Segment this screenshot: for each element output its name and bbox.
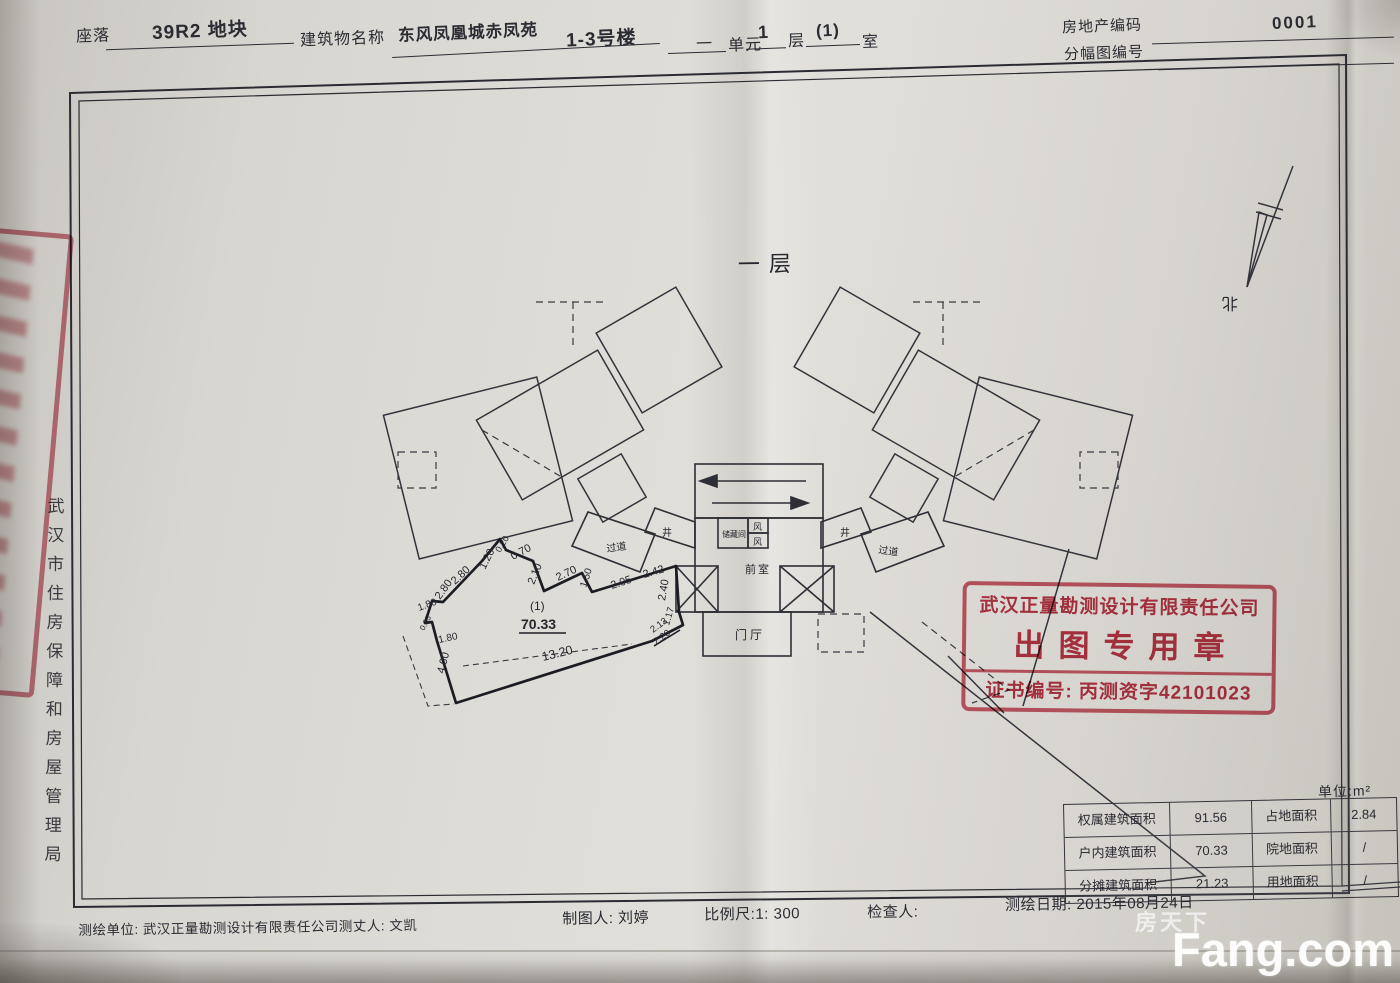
room-label-storage: 储藏间 (722, 529, 746, 539)
unit-number: (1) (530, 599, 545, 613)
company-stamp: 武汉正量勘测设计有限责任公司 出图专用章 证书编号: 丙测资字42101023 (961, 581, 1277, 715)
checker: 检查人: (867, 900, 918, 922)
wing-right (794, 287, 1132, 559)
dim-label: 2.05 (609, 574, 633, 592)
stamp-purpose: 出图专用章 (966, 619, 1273, 668)
stamp-cert-number: 证书编号: 丙测资字42101023 (965, 669, 1271, 706)
building-label: 建筑物名称 (300, 24, 386, 51)
table-cell: 占地面积 (1252, 799, 1332, 834)
dim-label: 1.50 (578, 567, 595, 589)
unit-area: 70.33 (521, 616, 556, 632)
room-label-front-room: 前室 (745, 562, 771, 576)
north-label: 北 (1222, 294, 1238, 312)
scale-note: 比例尺:1: 300 (704, 902, 800, 924)
wing-right-dashed (909, 302, 1118, 488)
unit-value: 1 (758, 22, 770, 43)
room-value: (1) (816, 21, 841, 42)
room-label-wind-2: 风 (753, 537, 762, 547)
table-cell: 70.33 (1171, 834, 1254, 869)
room-label: 室 (862, 28, 880, 53)
table-cell: 权属建筑面积 (1064, 803, 1171, 838)
sheet-no-label: 分幅图编号 (1064, 41, 1145, 65)
north-arrow (1247, 166, 1293, 287)
dim-label: 2.40 (656, 578, 672, 601)
table-cell: 91.56 (1170, 801, 1253, 836)
watermark-brand: Fang.com (1172, 922, 1394, 977)
scanned-survey-sheet: 一层 北 (0, 0, 1400, 983)
dim-label: 2.42 (642, 563, 666, 580)
dim-label: 1.80 (437, 631, 459, 646)
dimension-labels: 2.80 1.20 0.20 0.70 2.10 2.70 1.50 2.05 … (416, 534, 677, 675)
room-label-passage-right: 过道 (878, 543, 900, 559)
site-value: 39R2 地块 (151, 14, 248, 45)
room-label-wind-1: 风 (753, 522, 762, 532)
stamp-company-name: 武汉正量勘测设计有限责任公司 (966, 590, 1272, 621)
wing-left (383, 287, 721, 559)
table-cell: 户内建筑面积 (1065, 836, 1172, 871)
estate-code-label: 房地产编码 (1062, 14, 1143, 38)
dim-label: 13.20 (540, 643, 574, 664)
table-cell: / (1332, 831, 1398, 865)
site-label: 座落 (76, 21, 111, 46)
wing-left-dashed (398, 302, 607, 488)
floor-title: 一层 (738, 251, 800, 277)
room-label-shaft-right: 井 (840, 526, 850, 539)
drafter: 制图人: 刘婷 (562, 906, 649, 928)
room-label-passage-left: 过道 (606, 539, 628, 555)
floor-label: 层 (788, 27, 806, 52)
scan-shadow-corner-bl (0, 923, 180, 983)
table-cell: 2.84 (1331, 798, 1397, 832)
table-cell: 院地面积 (1253, 832, 1333, 867)
room-label-entrance-hall: 门厅 (735, 627, 765, 642)
room-label-shaft-left: 井 (662, 526, 672, 539)
estate-code-value: 0001 (1272, 12, 1319, 34)
dim-label: 4.00 (435, 651, 452, 675)
